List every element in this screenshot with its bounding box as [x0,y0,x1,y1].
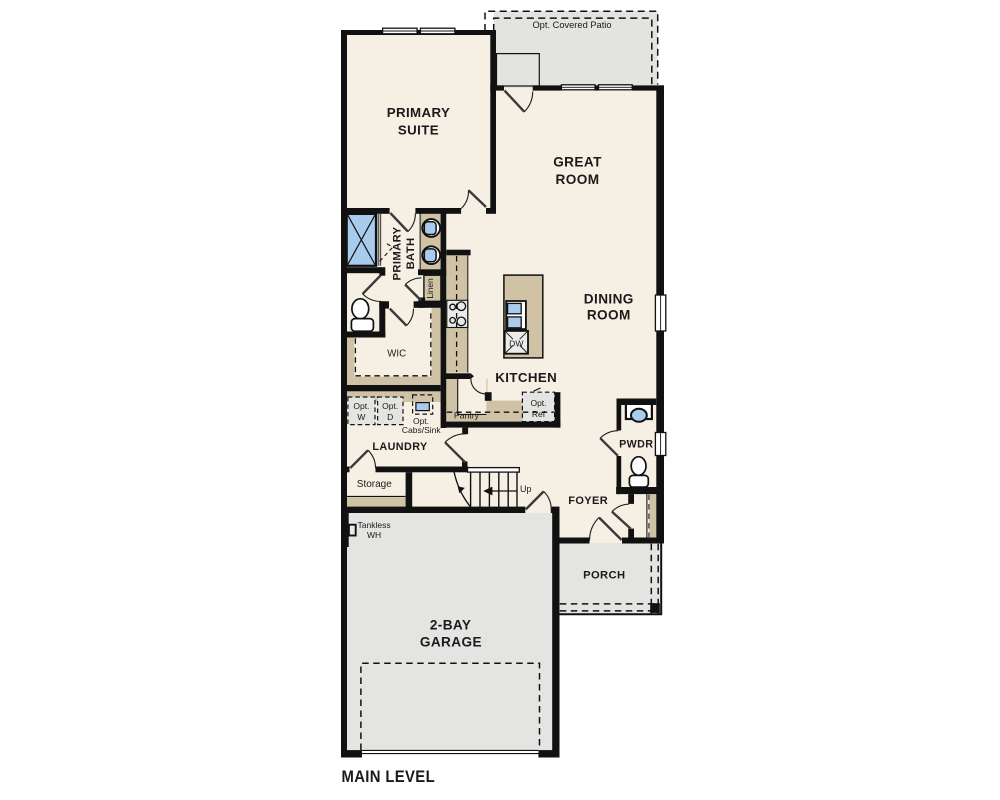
svg-text:Opt.: Opt. [530,398,546,408]
svg-text:GREAT: GREAT [553,155,602,170]
svg-text:Pantry: Pantry [454,411,480,421]
svg-text:W: W [357,412,365,422]
svg-text:SUITE: SUITE [398,123,439,138]
svg-text:Storage: Storage [357,479,392,490]
svg-text:DINING: DINING [584,291,634,306]
svg-text:Ref: Ref [532,409,546,419]
svg-text:Linen: Linen [425,278,435,299]
svg-text:Opt.: Opt. [353,401,369,411]
svg-text:Tankless: Tankless [358,520,391,530]
svg-text:2-BAY: 2-BAY [430,618,472,633]
svg-text:DW: DW [509,339,524,349]
svg-text:ROOM: ROOM [556,172,600,187]
svg-text:Up: Up [520,484,532,494]
svg-text:WH: WH [367,530,381,540]
svg-text:Cabs/Sink: Cabs/Sink [402,425,441,435]
svg-text:D: D [387,412,393,422]
svg-text:Opt. Covered Patio: Opt. Covered Patio [532,20,611,30]
svg-text:GARAGE: GARAGE [420,635,482,650]
svg-text:BATH: BATH [405,238,417,270]
svg-text:FOYER: FOYER [568,495,608,507]
svg-text:ROOM: ROOM [587,307,631,322]
svg-text:WIC: WIC [387,348,406,359]
svg-text:PORCH: PORCH [583,569,625,581]
svg-text:PRIMARY: PRIMARY [392,226,404,280]
svg-text:Opt.: Opt. [382,401,398,411]
svg-text:LAUNDRY: LAUNDRY [372,441,428,453]
svg-text:PWDR: PWDR [619,438,653,450]
svg-text:PRIMARY: PRIMARY [387,105,451,120]
svg-text:KITCHEN: KITCHEN [495,370,557,385]
svg-text:MAIN LEVEL: MAIN LEVEL [342,767,436,786]
